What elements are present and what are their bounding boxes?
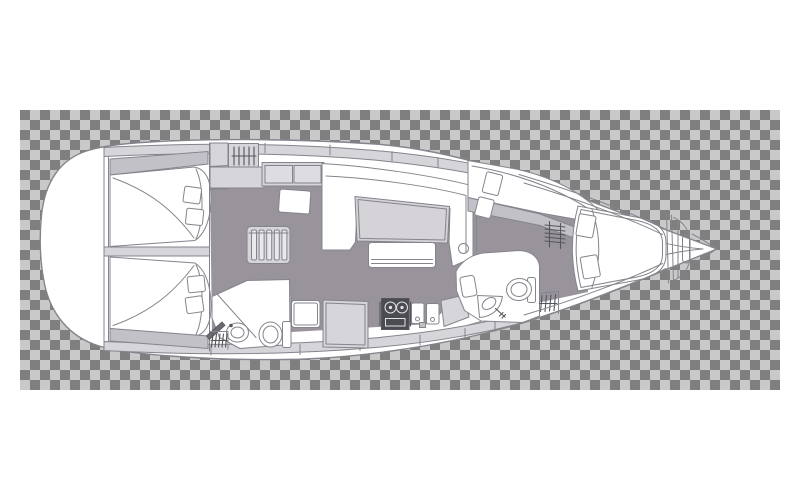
pillow	[185, 296, 204, 314]
cabinet-door	[265, 166, 293, 184]
louvered-locker	[247, 227, 290, 264]
aft-cabin-divider	[104, 247, 210, 256]
aft-cabin-starboard	[110, 257, 211, 352]
pillow	[183, 186, 202, 204]
bench-seat	[369, 243, 436, 268]
toilet	[259, 322, 291, 348]
cabinet-door	[294, 166, 321, 184]
galley-aft-locker	[210, 167, 264, 188]
pillow	[185, 208, 204, 226]
yacht-floorplan: Sailing yacht interior layout plan (top …	[0, 0, 800, 500]
shower-pan	[292, 301, 321, 328]
pillow	[187, 275, 206, 293]
sink-faucet	[420, 323, 426, 328]
washbasin	[227, 323, 249, 342]
stool	[278, 189, 311, 214]
aft-cabin-port	[110, 143, 211, 247]
pillow	[580, 255, 601, 280]
double-berth	[110, 167, 211, 247]
counter-lockers	[323, 300, 368, 348]
two-burner-stove	[380, 299, 411, 330]
companionway	[210, 143, 264, 189]
pillow	[576, 214, 597, 239]
door-leaf	[460, 275, 478, 298]
floorplan-stage: Sailing yacht interior layout plan (top …	[0, 0, 800, 500]
